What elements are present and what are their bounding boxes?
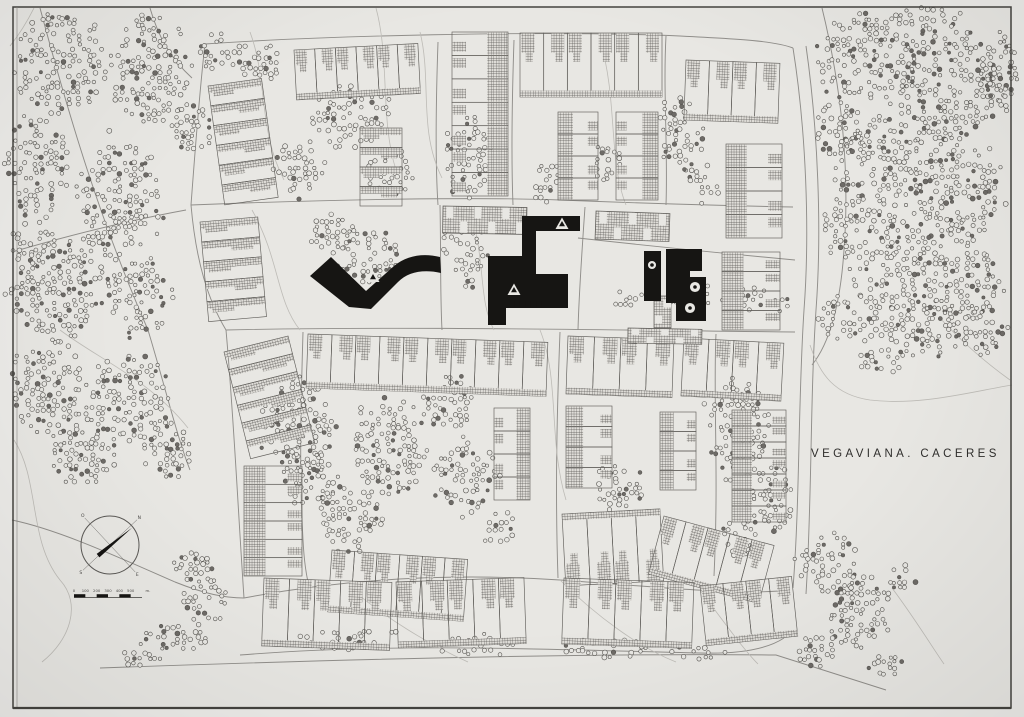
housing-strip: [443, 206, 527, 234]
scale-tick-label: 200: [93, 588, 101, 593]
compass-label: N: [138, 515, 141, 521]
scale-tick-label: 500: [127, 588, 135, 593]
compass-label: O: [81, 513, 85, 519]
housing-strip: [595, 211, 670, 242]
site-plan: NESO0100200300400500m.: [0, 0, 1024, 717]
scale-unit-label: m.: [146, 588, 151, 593]
compass-label: E: [136, 572, 139, 578]
scale-tick-label: 400: [116, 588, 124, 593]
plan-sheet: NESO0100200300400500m. VEGAVIANA. CACERE…: [0, 0, 1024, 717]
scale-tick-label: 100: [82, 588, 90, 593]
civic-building: [644, 251, 661, 301]
housing-strip: [628, 328, 702, 344]
scale-tick-label: 300: [104, 588, 112, 593]
plan-title: VEGAVIANA. CACERES: [811, 448, 1000, 460]
compass-label: S: [79, 570, 82, 576]
